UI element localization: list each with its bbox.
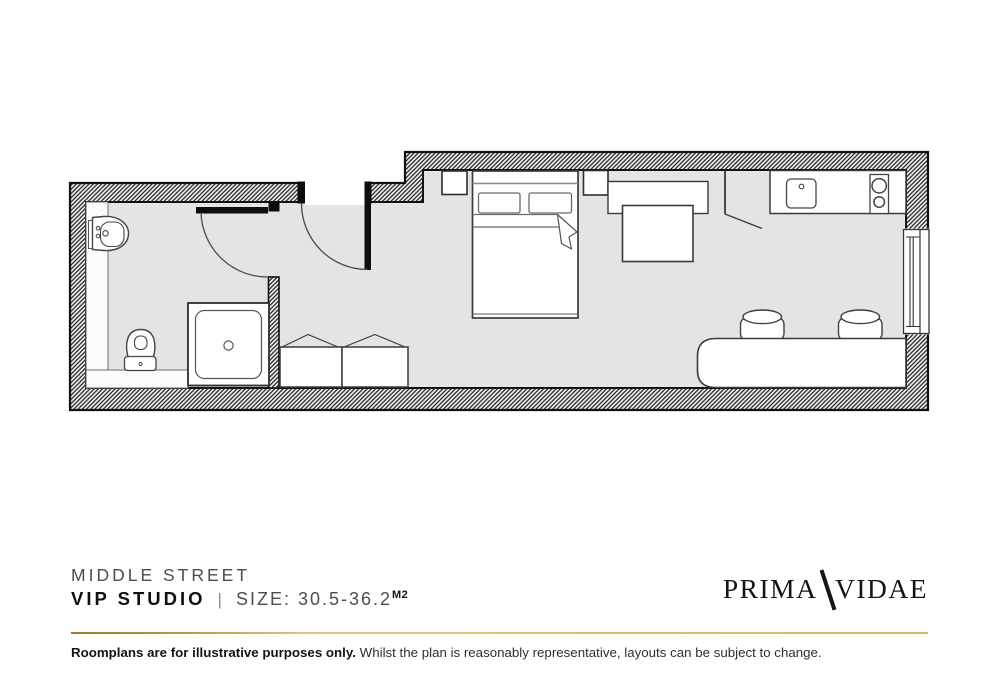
- hob: [870, 175, 889, 214]
- unit-size: SIZE: 30.5-36.2M2: [236, 589, 408, 610]
- bathroom-sink: [89, 216, 129, 250]
- nightstand-left: [442, 171, 467, 195]
- toilet: [125, 330, 157, 371]
- pillow: [479, 193, 521, 213]
- unit-title-row: VIP STUDIO | SIZE: 30.5-36.2M2: [71, 588, 408, 610]
- floor-plan: [0, 0, 1000, 540]
- window: [903, 229, 931, 335]
- logo-text-prima: PRIMA: [723, 573, 818, 605]
- desk-chair-2: [839, 310, 883, 341]
- size-unit: M2: [392, 589, 408, 601]
- nightstand-right: [584, 171, 609, 196]
- roomplan-page: MIDDLE STREET VIP STUDIO | SIZE: 30.5-36…: [0, 0, 1000, 700]
- logo-backslash-icon: [820, 569, 836, 610]
- kitchen-sink: [787, 179, 817, 208]
- gold-divider-line: [71, 632, 928, 634]
- kitchen-counter: [770, 171, 906, 214]
- development-name: MIDDLE STREET: [71, 565, 250, 586]
- desk: [698, 339, 907, 388]
- logo-text-vidae: VIDAE: [835, 573, 928, 605]
- desk-chair-1: [741, 310, 785, 341]
- shower-tray: [188, 303, 269, 386]
- disclaimer-bold: Roomplans are for illustrative purposes …: [71, 645, 356, 660]
- disclaimer-text: Roomplans are for illustrative purposes …: [71, 645, 822, 660]
- pillow: [529, 193, 572, 213]
- prima-vidae-logo: PRIMA VIDAE: [723, 566, 928, 612]
- unit-name: VIP STUDIO: [71, 588, 206, 610]
- disclaimer-rest: Whilst the plan is reasonably representa…: [356, 645, 822, 660]
- table: [623, 206, 694, 262]
- double-bed: [473, 171, 579, 318]
- title-separator: |: [206, 590, 236, 610]
